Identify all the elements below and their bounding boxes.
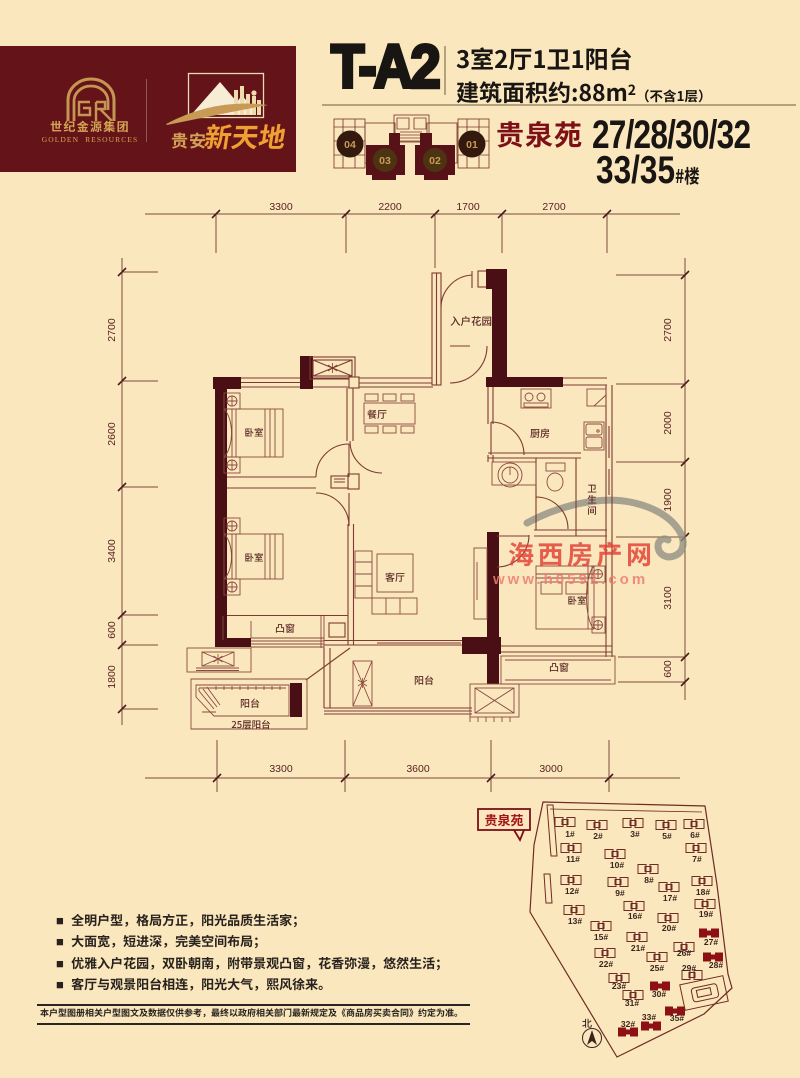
svg-text:3000: 3000 [539, 763, 563, 775]
svg-text:卧室: 卧室 [244, 550, 263, 564]
svg-text:1800: 1800 [106, 665, 118, 689]
svg-text:3300: 3300 [269, 763, 293, 775]
svg-text:北: 北 [582, 1015, 592, 1030]
svg-text:10#: 10# [610, 860, 624, 870]
svg-text:凸窗: 凸窗 [549, 659, 569, 674]
svg-text:04: 04 [344, 139, 356, 151]
svg-text:28#: 28# [709, 960, 723, 970]
svg-text:卧室: 卧室 [244, 425, 263, 439]
svg-text:03: 03 [379, 155, 391, 167]
svg-text:25#: 25# [650, 963, 664, 973]
svg-text:3300: 3300 [269, 201, 293, 213]
svg-text:1700: 1700 [456, 201, 480, 213]
svg-text:25层阳台: 25层阳台 [231, 717, 270, 731]
svg-text:9#: 9# [615, 888, 625, 898]
svg-text:2#: 2# [593, 831, 603, 841]
svg-text:5#: 5# [662, 831, 672, 841]
svg-text:22#: 22# [599, 959, 613, 969]
svg-text:2200: 2200 [378, 201, 402, 213]
svg-text:19#: 19# [699, 909, 713, 919]
svg-text:3600: 3600 [406, 763, 430, 775]
svg-text:阳台: 阳台 [414, 672, 434, 687]
svg-text:2700: 2700 [542, 201, 566, 213]
svg-text:6#: 6# [690, 830, 700, 840]
svg-text:间: 间 [587, 503, 597, 517]
svg-text:26#: 26# [677, 948, 691, 958]
svg-text:厨房: 厨房 [530, 425, 550, 440]
svg-text:17#: 17# [663, 893, 677, 903]
svg-text:贵泉苑: 贵泉苑 [484, 810, 523, 829]
svg-text:阳台: 阳台 [240, 695, 260, 710]
svg-text:2600: 2600 [106, 422, 118, 446]
svg-text:02: 02 [429, 155, 441, 167]
svg-text:21#: 21# [631, 943, 645, 953]
svg-text:32#: 32# [621, 1019, 635, 1029]
svg-text:33#: 33# [642, 1012, 656, 1022]
svg-text:3400: 3400 [106, 539, 118, 563]
svg-text:7#: 7# [692, 854, 702, 864]
svg-text:23#: 23# [612, 981, 626, 991]
svg-text:11#: 11# [566, 854, 580, 864]
svg-text:13#: 13# [568, 916, 582, 926]
svg-text:18#: 18# [696, 887, 710, 897]
svg-text:www.h0591.com: www.h0591.com [492, 571, 648, 588]
svg-text:2700: 2700 [662, 318, 674, 342]
svg-text:1#: 1# [565, 829, 575, 839]
svg-text:凸窗: 凸窗 [275, 620, 295, 635]
svg-text:3#: 3# [630, 829, 640, 839]
svg-text:30#: 30# [652, 989, 666, 999]
svg-text:29#: 29# [682, 963, 696, 973]
svg-text:600: 600 [106, 621, 118, 639]
svg-text:600: 600 [662, 660, 674, 678]
svg-text:海西房产网: 海西房产网 [508, 535, 656, 572]
svg-text:2700: 2700 [106, 318, 118, 342]
svg-text:27#: 27# [704, 937, 718, 947]
svg-text:客厅: 客厅 [385, 569, 405, 584]
svg-text:餐厅: 餐厅 [367, 406, 387, 421]
svg-text:31#: 31# [625, 998, 639, 1008]
svg-text:8#: 8# [644, 875, 654, 885]
svg-text:3100: 3100 [662, 586, 674, 610]
svg-text:12#: 12# [565, 886, 579, 896]
svg-text:20#: 20# [662, 923, 676, 933]
svg-text:16#: 16# [628, 911, 642, 921]
svg-text:2000: 2000 [662, 411, 674, 435]
svg-text:入户花园: 入户花园 [450, 314, 492, 329]
svg-text:01: 01 [466, 139, 478, 151]
svg-text:35#: 35# [670, 1013, 684, 1023]
svg-text:卧室: 卧室 [567, 593, 586, 607]
svg-text:15#: 15# [594, 932, 608, 942]
svg-text:1900: 1900 [662, 488, 674, 512]
